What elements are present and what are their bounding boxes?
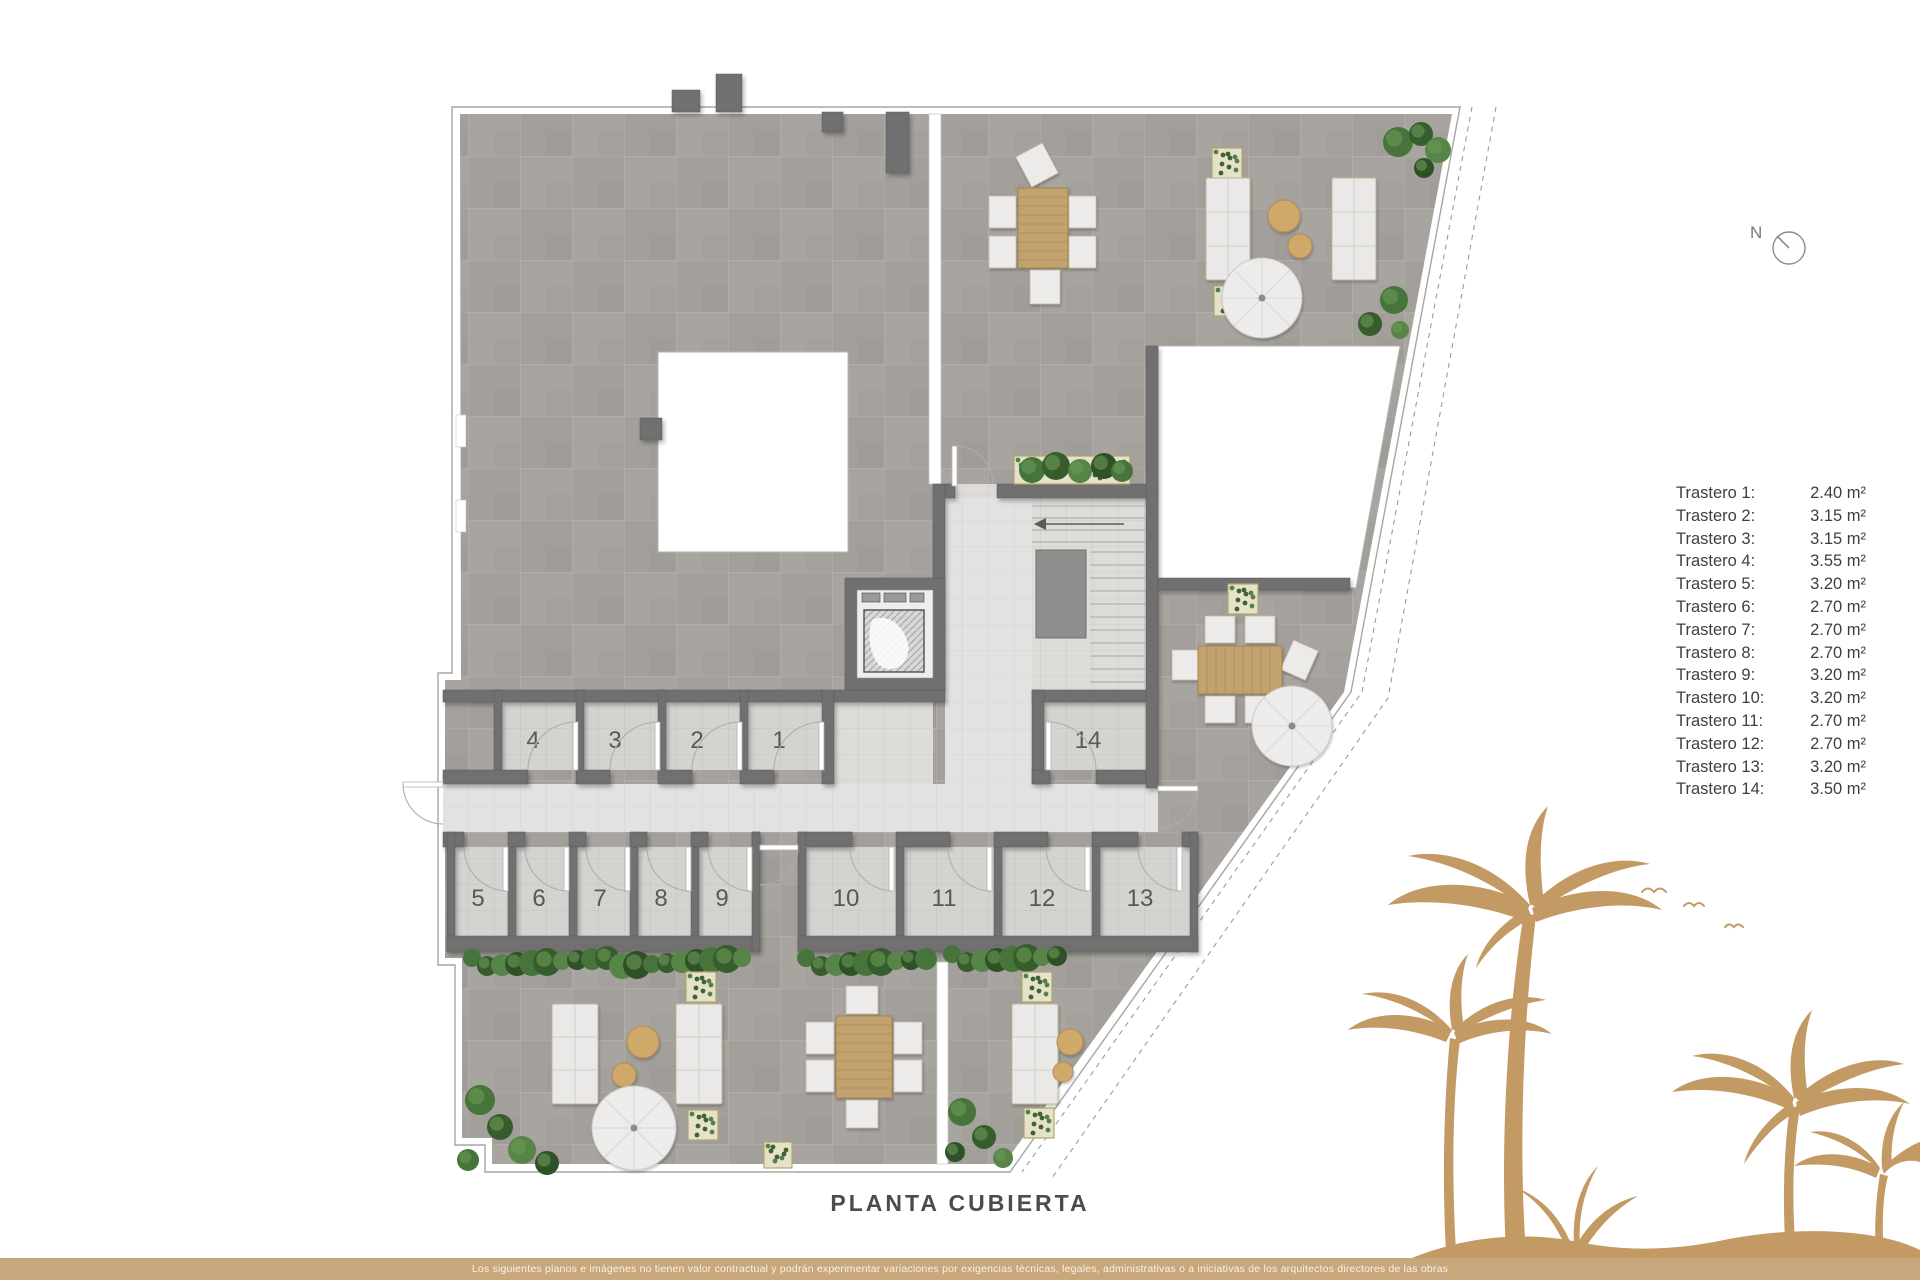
legend-value: 3.20 m² <box>1810 573 1866 596</box>
legend-label: Trastero 6: <box>1676 596 1755 619</box>
parasol <box>1252 686 1332 766</box>
wood-table <box>836 1016 892 1098</box>
legend-value: 3.50 m² <box>1810 778 1866 801</box>
legend-label: Trastero 12: <box>1676 733 1764 756</box>
skylight-void-left <box>658 352 848 552</box>
vestibule <box>834 702 933 784</box>
legend-label: Trastero 10: <box>1676 687 1764 710</box>
room-label-6: 6 <box>532 885 545 912</box>
room-label-7: 7 <box>593 885 606 912</box>
parasol <box>1222 258 1302 338</box>
legend-label: Trastero 9: <box>1676 664 1755 687</box>
vent-block <box>886 112 909 173</box>
legend-row: Trastero 7:2.70 m² <box>1676 619 1866 642</box>
legend-label: Trastero 5: <box>1676 573 1755 596</box>
legend-row: Trastero 13:3.20 m² <box>1676 756 1866 779</box>
legend-value: 3.20 m² <box>1810 664 1866 687</box>
legend-label: Trastero 1: <box>1676 482 1755 505</box>
legend-label: Trastero 13: <box>1676 756 1764 779</box>
legend-label: Trastero 3: <box>1676 528 1755 551</box>
north-compass: N <box>1740 210 1820 280</box>
elevator <box>857 590 933 678</box>
column <box>640 418 662 440</box>
legend-row: Trastero 11:2.70 m² <box>1676 710 1866 733</box>
legend-label: Trastero 8: <box>1676 642 1755 665</box>
coffee-table <box>1268 200 1300 232</box>
sand-dunes <box>1412 1231 1920 1258</box>
party-wall-top <box>929 114 941 484</box>
storage-room-9: 9 <box>699 847 752 936</box>
room-label-5: 5 <box>471 885 484 912</box>
page: 4 3 2 1 14 5 6 7 <box>0 0 1920 1280</box>
plan-title: PLANTA CUBIERTA <box>730 1190 1190 1217</box>
legend-row: Trastero 6:2.70 m² <box>1676 596 1866 619</box>
storage-room-10: 10 <box>806 847 896 936</box>
coffee-table <box>1057 1029 1083 1055</box>
party-wall-bottom <box>937 962 948 1164</box>
legend-row: Trastero 14:3.50 m² <box>1676 778 1866 801</box>
storage-room-8: 8 <box>638 847 691 936</box>
legend-label: Trastero 11: <box>1676 710 1763 733</box>
legend-label: Trastero 4: <box>1676 550 1755 573</box>
room-label-14: 14 <box>1075 727 1102 754</box>
legend-value: 3.15 m² <box>1810 528 1866 551</box>
storage-room-3: 3 <box>584 702 658 770</box>
footer-bar: Los siguientes planos e imágenes no tien… <box>0 1258 1920 1280</box>
wood-table <box>1198 646 1282 694</box>
room-label-11: 11 <box>932 885 957 912</box>
storage-room-13: 13 <box>1100 847 1190 936</box>
wood-table <box>1018 188 1068 268</box>
legend-value: 2.70 m² <box>1810 642 1866 665</box>
storage-legend: Trastero 1:2.40 m² Trastero 2:3.15 m² Tr… <box>1676 482 1866 801</box>
room-label-12: 12 <box>1029 885 1056 912</box>
legend-row: Trastero 4:3.55 m² <box>1676 550 1866 573</box>
coffee-table <box>627 1026 659 1058</box>
legend-value: 3.20 m² <box>1810 687 1866 710</box>
legend-label: Trastero 7: <box>1676 619 1755 642</box>
legend-value: 3.55 m² <box>1810 550 1866 573</box>
storage-room-5: 5 <box>455 847 508 936</box>
room-label-10: 10 <box>833 885 860 912</box>
room-label-8: 8 <box>654 885 667 912</box>
legend-row: Trastero 2:3.15 m² <box>1676 505 1866 528</box>
legend-row: Trastero 1:2.40 m² <box>1676 482 1866 505</box>
legend-row: Trastero 9:3.20 m² <box>1676 664 1866 687</box>
footer-disclaimer: Los siguientes planos e imágenes no tien… <box>0 1258 1920 1280</box>
room-label-9: 9 <box>715 885 728 912</box>
legend-value: 2.70 m² <box>1810 710 1866 733</box>
legend-row: Trastero 3:3.15 m² <box>1676 528 1866 551</box>
legend-value: 3.15 m² <box>1810 505 1866 528</box>
palm-decoration <box>1348 806 1920 1258</box>
legend-value: 2.70 m² <box>1810 619 1866 642</box>
storage-room-1: 1 <box>748 702 822 770</box>
floor-plan: 4 3 2 1 14 5 6 7 <box>0 0 1920 1280</box>
room-label-13: 13 <box>1127 885 1154 912</box>
storage-room-7: 7 <box>577 847 630 936</box>
legend-label: Trastero 2: <box>1676 505 1755 528</box>
north-label: N <box>1750 223 1762 242</box>
storage-room-4: 4 <box>502 702 576 770</box>
legend-value: 3.20 m² <box>1810 756 1866 779</box>
storage-room-12: 12 <box>1002 847 1092 936</box>
chimney-block <box>672 90 700 112</box>
parasol <box>592 1086 676 1170</box>
storage-room-6: 6 <box>516 847 569 936</box>
storage-room-11: 11 <box>904 847 994 936</box>
vent-block <box>822 112 843 132</box>
stair-well <box>1036 550 1086 638</box>
legend-value: 2.70 m² <box>1810 733 1866 756</box>
legend-label: Trastero 14: <box>1676 778 1764 801</box>
legend-value: 2.40 m² <box>1810 482 1866 505</box>
legend-row: Trastero 10:3.20 m² <box>1676 687 1866 710</box>
chimney-block <box>716 74 742 112</box>
legend-row: Trastero 8:2.70 m² <box>1676 642 1866 665</box>
legend-row: Trastero 12:2.70 m² <box>1676 733 1866 756</box>
legend-value: 2.70 m² <box>1810 596 1866 619</box>
palm-tree-right-t <box>1672 1010 1910 1256</box>
legend-row: Trastero 5:3.20 m² <box>1676 573 1866 596</box>
storage-room-2: 2 <box>666 702 740 770</box>
